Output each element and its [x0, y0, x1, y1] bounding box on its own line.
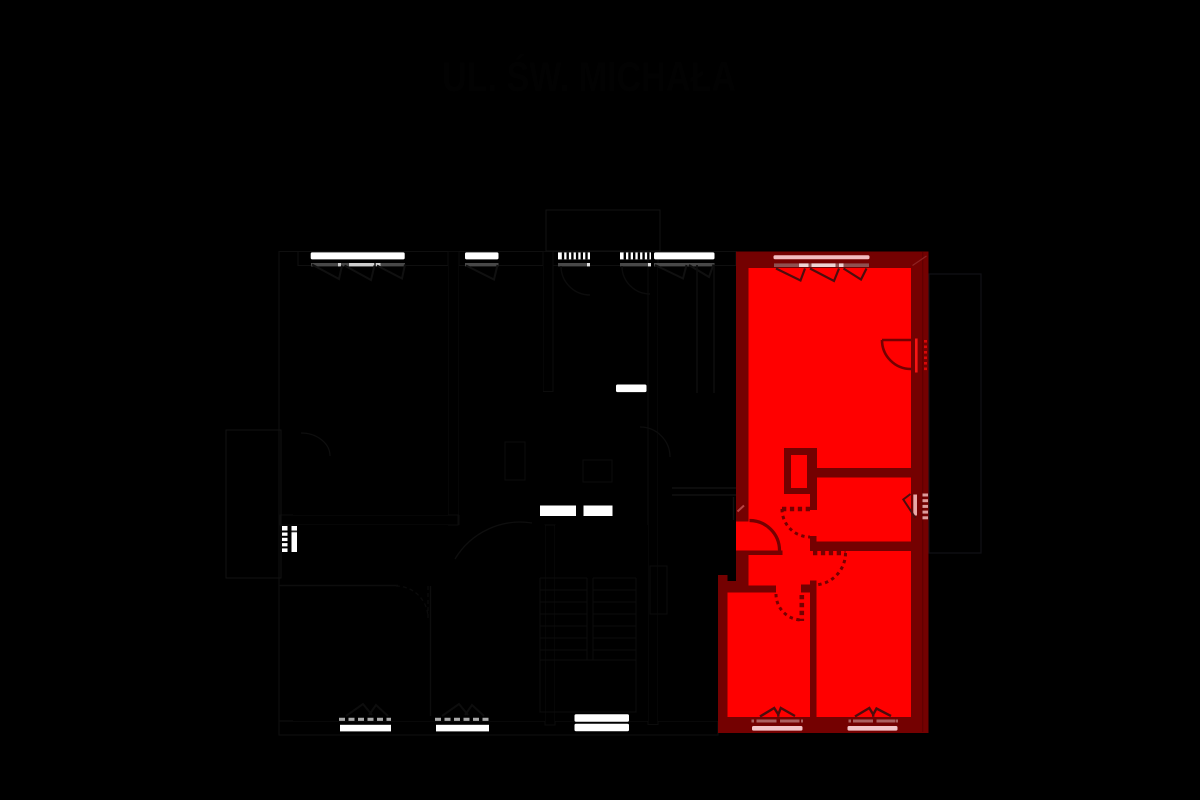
svg-text:UL. ŚW. MICHAŁA: UL. ŚW. MICHAŁA	[442, 52, 736, 100]
